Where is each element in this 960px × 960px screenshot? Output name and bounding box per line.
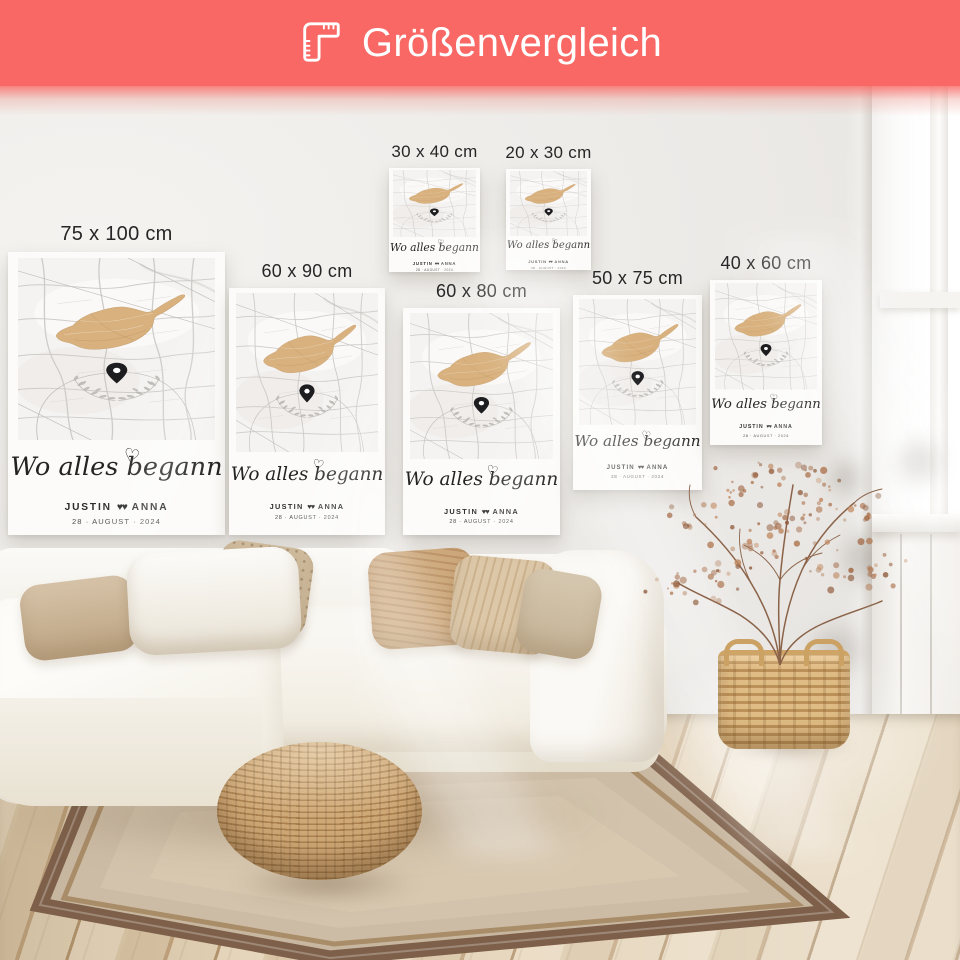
poster-headline: Wo alles begann♡ [506,241,591,252]
poster-75x100: 75 x 100 cm Wo alles begann♡ JUSTIN♥♥ANN… [8,252,225,535]
poster-20x30: 20 x 30 cm Wo alles begann♡ JUSTIN♥♥ANNA… [506,169,591,270]
double-heart-icon: ♥♥ [435,261,439,266]
map-print [510,171,587,236]
poster-date: 28 · AUGUST · 2024 [8,517,225,526]
heart-accent-icon: ♡ [310,458,325,474]
poster-60x90: 60 x 90 cm Wo alles begann♡ JUSTIN♥♥ANNA… [229,288,385,535]
double-heart-icon: ♥♥ [549,259,553,264]
living-room-scene: 75 x 100 cm Wo alles begann♡ JUSTIN♥♥ANN… [0,86,960,960]
map-print [715,283,817,389]
poster-30x40: 30 x 40 cm Wo alles begann♡ JUSTIN♥♥ANNA… [389,168,480,272]
poster-60x80: 60 x 80 cm Wo alles begann♡ JUSTIN♥♥ANNA… [403,308,560,535]
poster-date: 28 · AUGUST · 2024 [403,519,560,525]
poster-names: JUSTIN♥♥ANNA [403,507,560,516]
plant-foliage [643,462,907,606]
size-label: 20 x 30 cm [505,143,591,163]
rattan-pouf [217,742,422,880]
poster-names: JUSTIN♥♥ANNA [229,502,385,511]
map-print [393,170,476,237]
product-photo-size-comparison: 75 x 100 cm Wo alles begann♡ JUSTIN♥♥ANN… [0,0,960,960]
poster-date: 28 · AUGUST · 2024 [389,268,480,272]
size-label: 30 x 40 cm [391,142,477,162]
pillow-beige-textured [18,573,140,662]
poster-headline: Wo alles begann♡ [229,465,385,484]
poster-names: JUSTIN♥♥ANNA [506,259,591,264]
window-transom-bar [880,292,960,308]
poster-headline: Wo alles begann♡ [403,470,560,489]
double-heart-icon: ♥♥ [482,507,489,516]
pillow-white [125,546,302,657]
map-print [18,258,216,441]
size-label: 50 x 75 cm [592,268,683,289]
size-label: 60 x 90 cm [261,261,352,282]
double-heart-icon: ♥♥ [117,502,127,513]
map-print [410,313,553,459]
poster-names: JUSTIN♥♥ANNA [389,261,480,266]
size-label: 60 x 80 cm [436,281,527,302]
poster-date: 28 · AUGUST · 2024 [506,266,591,270]
poster-date: 28 · AUGUST · 2024 [229,515,385,521]
dried-plant [630,415,920,665]
size-label: 40 x 60 cm [720,253,811,274]
poster-headline: Wo alles begann♡ [8,454,225,481]
map-print [236,293,378,452]
size-label: 75 x 100 cm [60,223,172,246]
poster-headline: Wo alles begann♡ [710,398,822,412]
pillow-beige-plain [513,566,604,662]
corner-ruler-icon [298,18,344,69]
poster-names: JUSTIN♥♥ANNA [8,502,225,513]
double-heart-icon: ♥♥ [307,502,314,511]
poster-headline: Wo alles begann♡ [389,242,480,253]
size-comparison-banner: Größenvergleich [0,0,960,86]
map-print [579,299,696,425]
banner-title: Größenvergleich [362,21,662,66]
